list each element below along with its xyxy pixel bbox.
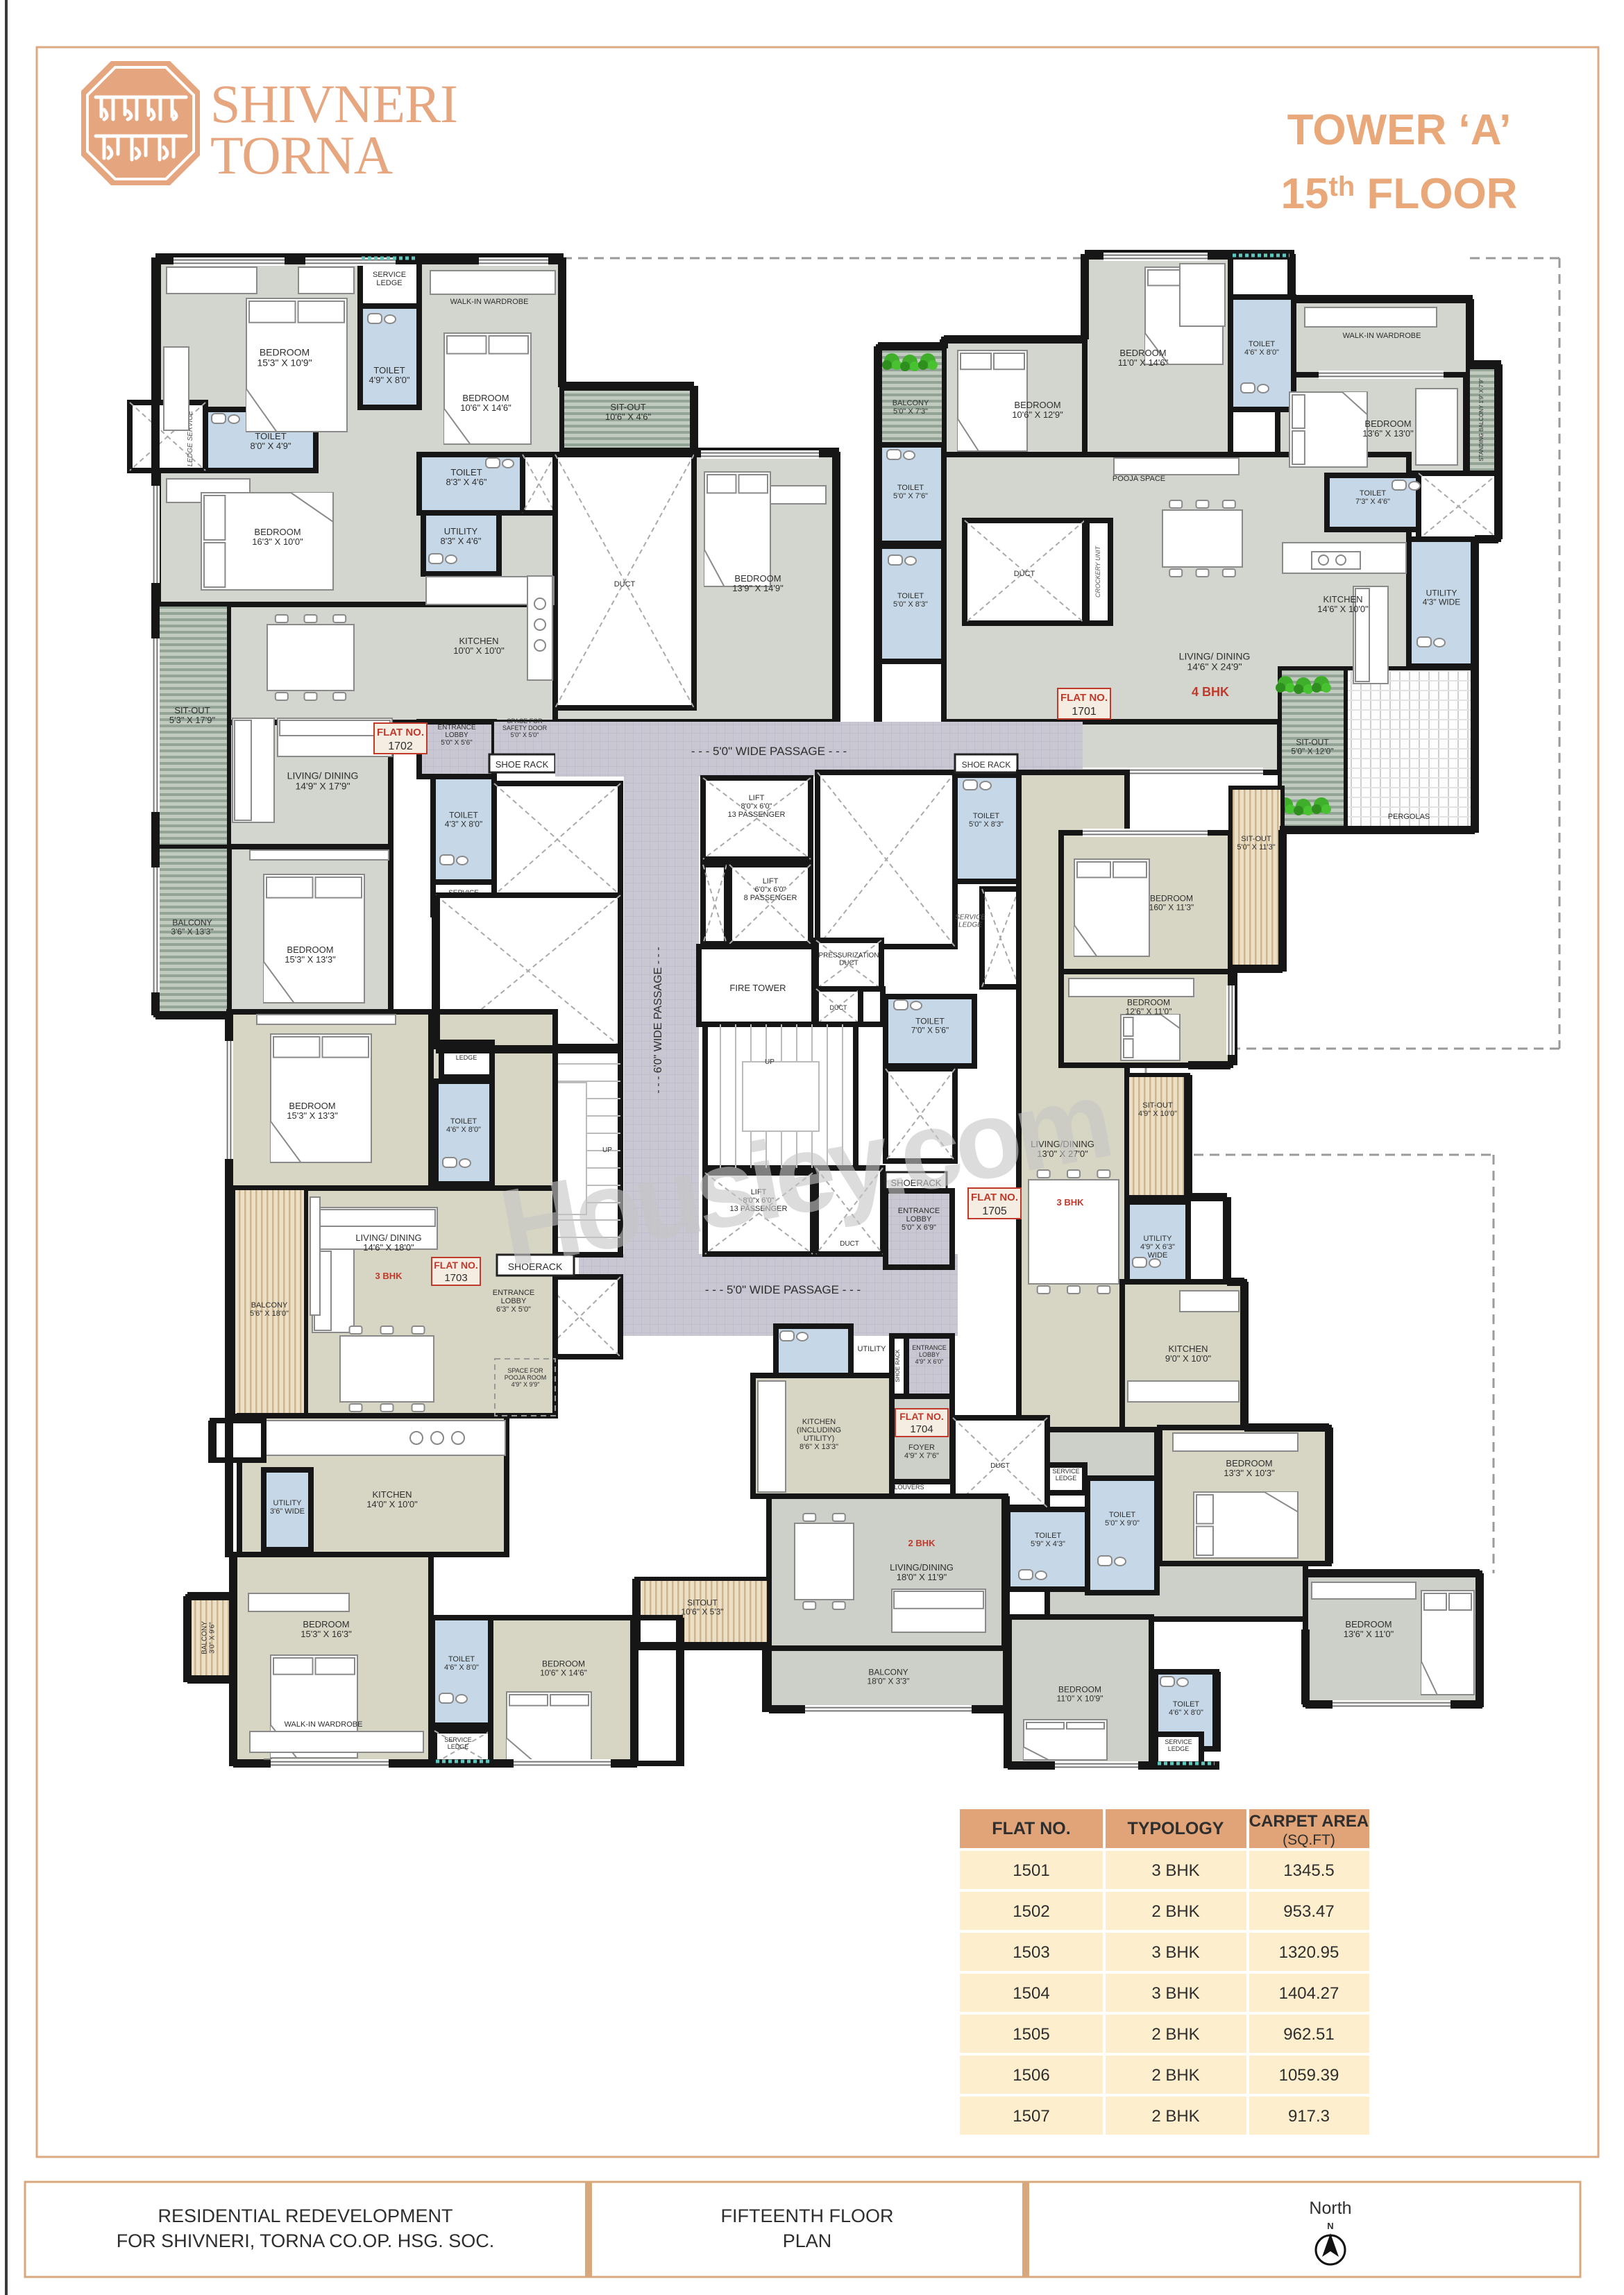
- svg-text:15th FLOOR: 15th FLOOR: [1281, 170, 1518, 218]
- svg-text:2 BHK: 2 BHK: [1151, 2025, 1199, 2044]
- svg-text:BEDROOM10'6" X 12'9": BEDROOM10'6" X 12'9": [1012, 400, 1063, 420]
- svg-text:UTILITY8'3" X 4'6": UTILITY8'3" X 4'6": [440, 526, 481, 546]
- svg-text:TOILET7'3" X 4'6": TOILET7'3" X 4'6": [1355, 489, 1390, 506]
- svg-text:TOILET4'9" X 8'0": TOILET4'9" X 8'0": [369, 365, 409, 385]
- svg-text:TOILET4'6" X 8'0": TOILET4'6" X 8'0": [1169, 1700, 1203, 1717]
- svg-text:TOILET5'0" X 9'0": TOILET5'0" X 9'0": [1105, 1511, 1140, 1527]
- svg-text:FLAT NO.: FLAT NO.: [1060, 692, 1108, 704]
- svg-text:DUCT: DUCT: [830, 1004, 847, 1011]
- svg-text:TOILET4'6" X 8'0": TOILET4'6" X 8'0": [446, 1117, 481, 1134]
- svg-text:FIRE TOWER: FIRE TOWER: [729, 983, 786, 993]
- svg-text:3 BHK: 3 BHK: [1151, 1861, 1199, 1880]
- svg-text:FOYER4'9" X 7'6": FOYER4'9" X 7'6": [904, 1443, 939, 1460]
- svg-text:LIVING/DINING18'0" X 11'9": LIVING/DINING18'0" X 11'9": [890, 1562, 954, 1582]
- svg-text:1502: 1502: [1013, 1902, 1049, 1921]
- svg-text:FLAT NO.: FLAT NO.: [434, 1260, 478, 1271]
- svg-text:1404.27: 1404.27: [1279, 1984, 1339, 2003]
- svg-text:1705: 1705: [982, 1205, 1007, 1217]
- svg-text:FLAT NO.: FLAT NO.: [377, 727, 424, 738]
- svg-text:1501: 1501: [1013, 1861, 1049, 1880]
- svg-text:SERVICELEDGE: SERVICELEDGE: [955, 914, 986, 929]
- svg-text:DUCT: DUCT: [990, 1462, 1010, 1470]
- svg-text:(SQ.FT): (SQ.FT): [1283, 1832, 1335, 1848]
- svg-text:SHOE RACK: SHOE RACK: [895, 1349, 901, 1382]
- svg-text:TOILET8'0" X 4'9": TOILET8'0" X 4'9": [250, 431, 291, 451]
- svg-text:1059.39: 1059.39: [1279, 2066, 1339, 2085]
- svg-text:BEDROOM15'3" X 13'3": BEDROOM15'3" X 13'3": [287, 1101, 338, 1121]
- svg-text:STANDING BALCONY 1'9" X 7'9": STANDING BALCONY 1'9" X 7'9": [1478, 378, 1485, 461]
- svg-text:RESIDENTIAL REDEVELOPMENT: RESIDENTIAL REDEVELOPMENT: [158, 2205, 452, 2226]
- svg-text:BEDROOM16'3" X 10'0": BEDROOM16'3" X 10'0": [252, 527, 303, 547]
- svg-text:N: N: [1327, 2221, 1333, 2231]
- svg-text:SHOE RACK: SHOE RACK: [962, 760, 1011, 770]
- svg-text:DUCT: DUCT: [1014, 570, 1035, 578]
- svg-text:BEDROOM15'3" X 16'3": BEDROOM15'3" X 16'3": [301, 1619, 352, 1639]
- svg-text:- - - 5'0" WIDE PASSAGE - -: - - - 5'0" WIDE PASSAGE - - -: [705, 1283, 861, 1296]
- svg-text:SIT-OUT5'0" X 12'0": SIT-OUT5'0" X 12'0": [1291, 737, 1333, 756]
- svg-text:LIVING/ DINING14'9" X 17'9": LIVING/ DINING14'9" X 17'9": [287, 770, 359, 791]
- svg-text:BEDROOM10'6" X 14'6": BEDROOM10'6" X 14'6": [460, 393, 511, 413]
- svg-text:KITCHEN14'6" X 10'0": KITCHEN14'6" X 10'0": [1317, 594, 1369, 614]
- svg-text:TOILET4'6" X 8'0": TOILET4'6" X 8'0": [444, 1655, 479, 1672]
- svg-text:3 BHK: 3 BHK: [1056, 1197, 1084, 1208]
- svg-text:BEDROOM10'6" X 14'6": BEDROOM10'6" X 14'6": [540, 1659, 587, 1677]
- svg-text:SERVICELEDGE: SERVICELEDGE: [373, 271, 406, 287]
- svg-text:3 BHK: 3 BHK: [1151, 1984, 1199, 2003]
- svg-text:1505: 1505: [1013, 2025, 1049, 2044]
- svg-text:POOJA SPACE: POOJA SPACE: [1113, 475, 1165, 483]
- svg-text:SIT-OUT5'3" X 17'9": SIT-OUT5'3" X 17'9": [169, 705, 216, 725]
- svg-text:2 BHK: 2 BHK: [1151, 2107, 1199, 2126]
- svg-text:CARPET AREA: CARPET AREA: [1249, 1812, 1369, 1831]
- svg-text:DUCT: DUCT: [840, 1240, 859, 1248]
- svg-text:1506: 1506: [1013, 2066, 1049, 2085]
- svg-text:BEDROOM11'0" X 10'9": BEDROOM11'0" X 10'9": [1057, 1684, 1103, 1703]
- svg-text:- - - 6'0" WIDE PASSAGE - -: - - - 6'0" WIDE PASSAGE - - -: [652, 947, 664, 1093]
- svg-text:1701: 1701: [1072, 706, 1097, 718]
- svg-text:PERGOLAS: PERGOLAS: [1388, 813, 1430, 821]
- svg-text:BALCONY5'0" X 7'3": BALCONY5'0" X 7'3": [893, 399, 929, 416]
- svg-text:SHOE RACK: SHOE RACK: [496, 759, 549, 770]
- svg-text:CROCKERY UNIT: CROCKERY UNIT: [1094, 545, 1101, 598]
- svg-text:TOILET5'9" X 4'3": TOILET5'9" X 4'3": [1031, 1532, 1065, 1548]
- svg-text:WALK-IN WARDROBE: WALK-IN WARDROBE: [1343, 332, 1421, 340]
- svg-text:UP: UP: [765, 1058, 775, 1066]
- svg-text:TOILET5'0" X 8'3": TOILET5'0" X 8'3": [969, 812, 1004, 829]
- svg-text:TYPOLOGY: TYPOLOGY: [1128, 1819, 1224, 1838]
- svg-text:TOILET7'0" X 5'6": TOILET7'0" X 5'6": [911, 1016, 949, 1035]
- svg-text:BALCONY3'0" X 9'6": BALCONY3'0" X 9'6": [201, 1621, 217, 1654]
- svg-text:SERVICELEDGE: SERVICELEDGE: [1052, 1468, 1079, 1482]
- svg-text:UTILITY: UTILITY: [858, 1345, 887, 1353]
- svg-text:BALCONY5'6" X 18'0": BALCONY5'6" X 18'0": [250, 1301, 289, 1318]
- svg-text:LIVING/ DINING14'6" X 18'0": LIVING/ DINING14'6" X 18'0": [355, 1233, 421, 1253]
- svg-text:3 BHK: 3 BHK: [375, 1271, 403, 1281]
- svg-text:1703: 1703: [444, 1272, 467, 1284]
- svg-text:3 BHK: 3 BHK: [1151, 1943, 1199, 1962]
- svg-text:TOILET4'3" X 8'0": TOILET4'3" X 8'0": [445, 810, 482, 829]
- svg-text:953.47: 953.47: [1283, 1902, 1334, 1921]
- svg-text:- - - 5'0" WIDE PASSAGE - -: - - - 5'0" WIDE PASSAGE - - -: [691, 745, 847, 758]
- svg-text:2 BHK: 2 BHK: [908, 1538, 936, 1548]
- svg-text:1702: 1702: [388, 740, 413, 752]
- svg-text:2 BHK: 2 BHK: [1151, 2066, 1199, 2085]
- svg-text:LIVING/ DINING14'6" X 24'9": LIVING/ DINING14'6" X 24'9": [1179, 650, 1251, 672]
- svg-text:1507: 1507: [1013, 2107, 1049, 2126]
- svg-text:BEDROOM13'6" X 11'0": BEDROOM13'6" X 11'0": [1344, 1619, 1394, 1639]
- svg-text:SITOUT10'6" X 5'3": SITOUT10'6" X 5'3": [681, 1598, 723, 1616]
- svg-text:North: North: [1309, 2199, 1351, 2218]
- svg-text:KITCHEN14'0" X 10'0": KITCHEN14'0" X 10'0": [366, 1489, 418, 1509]
- svg-text:SIT-OUT5'0" X 11'3": SIT-OUT5'0" X 11'3": [1237, 835, 1275, 852]
- svg-text:1320.95: 1320.95: [1279, 1943, 1339, 1962]
- svg-text:BEDROOM15'3" X 10'9": BEDROOM15'3" X 10'9": [257, 346, 312, 368]
- svg-text:KITCHEN9'0" X 10'0": KITCHEN9'0" X 10'0": [1165, 1344, 1212, 1364]
- svg-text:BALCONY18'0" X 3'3": BALCONY18'0" X 3'3": [867, 1667, 909, 1686]
- svg-text:KITCHEN10'0" X 10'0": KITCHEN10'0" X 10'0": [453, 636, 505, 656]
- svg-text:FOR SHIVNERI, TORNA CO.OP. HSG: FOR SHIVNERI, TORNA CO.OP. HSG. SOC.: [117, 2230, 495, 2251]
- svg-text:UTILITY4'3" WIDE: UTILITY4'3" WIDE: [1423, 588, 1461, 607]
- svg-text:WALK-IN WARDROBE: WALK-IN WARDROBE: [285, 1720, 363, 1729]
- svg-text:SERVICELEDGE: SERVICELEDGE: [444, 1736, 471, 1750]
- svg-text:TOILET8'3" X 4'6": TOILET8'3" X 4'6": [446, 467, 487, 487]
- svg-text:DUCT: DUCT: [614, 580, 636, 588]
- svg-text:PLAN: PLAN: [783, 2230, 832, 2251]
- svg-text:LOUVERS: LOUVERS: [894, 1484, 924, 1491]
- svg-text:SIT-OUT4'9" X 10'0": SIT-OUT4'9" X 10'0": [1138, 1101, 1177, 1118]
- svg-text:WALK-IN WARDROBE: WALK-IN WARDROBE: [450, 298, 529, 306]
- svg-text:TOILET5'0" X 7'6": TOILET5'0" X 7'6": [893, 484, 928, 500]
- svg-text:BEDROOM160" X 11'3": BEDROOM160" X 11'3": [1149, 893, 1194, 912]
- svg-text:BEDROOM11'0" X 14'6": BEDROOM11'0" X 14'6": [1118, 348, 1169, 368]
- svg-text:917.3: 917.3: [1288, 2107, 1330, 2126]
- svg-text:FLAT NO.: FLAT NO.: [992, 1819, 1070, 1838]
- svg-text:TOILET4'6" X 8'0": TOILET4'6" X 8'0": [1244, 340, 1279, 357]
- svg-text:1345.5: 1345.5: [1283, 1861, 1334, 1880]
- svg-text:SIT-OUT10'6" X 4'6": SIT-OUT10'6" X 4'6": [605, 402, 652, 422]
- svg-text:TOWER ‘A’: TOWER ‘A’: [1287, 106, 1512, 154]
- svg-text:1503: 1503: [1013, 1943, 1049, 1962]
- svg-text:TORNA: TORNA: [210, 125, 393, 185]
- svg-text:FLAT NO.: FLAT NO.: [899, 1411, 944, 1422]
- svg-text:BEDROOM13'9" X 14'9": BEDROOM13'9" X 14'9": [732, 573, 784, 593]
- svg-text:BEDROOM12'6" X 11'0": BEDROOM12'6" X 11'0": [1126, 997, 1172, 1016]
- svg-text:1504: 1504: [1013, 1984, 1049, 2003]
- svg-text:2 BHK: 2 BHK: [1151, 1902, 1199, 1921]
- svg-text:962.51: 962.51: [1283, 2025, 1334, 2044]
- svg-text:1704: 1704: [910, 1423, 933, 1435]
- svg-text:TOILET5'0" X 8'3": TOILET5'0" X 8'3": [893, 592, 928, 609]
- svg-text:UTILITY3'6" WIDE: UTILITY3'6" WIDE: [270, 1499, 305, 1516]
- svg-text:BEDROOM13'6" X 13'0": BEDROOM13'6" X 13'0": [1362, 418, 1414, 439]
- svg-text:4 BHK: 4 BHK: [1192, 685, 1229, 699]
- svg-text:BEDROOM15'3" X 13'3": BEDROOM15'3" X 13'3": [285, 945, 336, 965]
- svg-text:BALCONY3'6" X 13'3": BALCONY3'6" X 13'3": [171, 917, 213, 936]
- svg-text:FIFTEENTH FLOOR: FIFTEENTH FLOOR: [721, 2205, 894, 2226]
- svg-text:SERVICELEDGE: SERVICELEDGE: [1165, 1738, 1192, 1752]
- svg-text:BEDROOM13'3" X 10'3": BEDROOM13'3" X 10'3": [1224, 1458, 1275, 1478]
